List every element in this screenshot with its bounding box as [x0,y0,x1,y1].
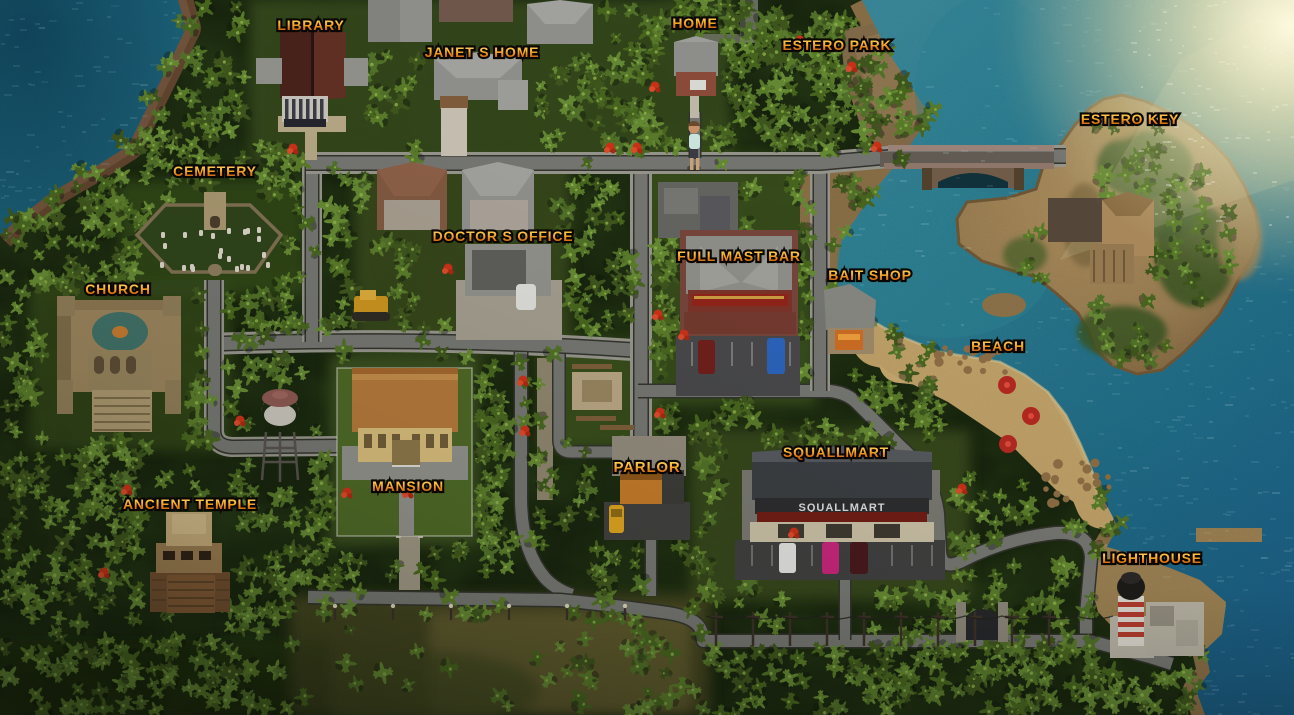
svg-text:CEMETERY: CEMETERY [173,163,257,179]
svg-text:LIGHTHOUSE: LIGHTHOUSE [1102,550,1202,566]
svg-text:SQUALLMART: SQUALLMART [783,444,889,460]
svg-text:BAIT SHOP: BAIT SHOP [828,267,911,283]
svg-text:DOCTOR S OFFICE: DOCTOR S OFFICE [433,228,574,244]
svg-text:HOME: HOME [672,15,717,31]
svg-text:ESTERO KEY: ESTERO KEY [1081,111,1179,127]
svg-text:LIBRARY: LIBRARY [277,17,344,33]
svg-text:ANCIENT TEMPLE: ANCIENT TEMPLE [123,496,257,512]
svg-text:FULL MAST BAR: FULL MAST BAR [677,248,801,264]
svg-text:BEACH: BEACH [971,338,1025,354]
svg-text:ESTERO PARK: ESTERO PARK [783,37,892,53]
svg-text:MANSION: MANSION [372,478,444,494]
svg-text:JANET S HOME: JANET S HOME [425,44,540,60]
svg-text:PARLOR: PARLOR [613,459,680,476]
svg-text:CHURCH: CHURCH [85,281,150,297]
